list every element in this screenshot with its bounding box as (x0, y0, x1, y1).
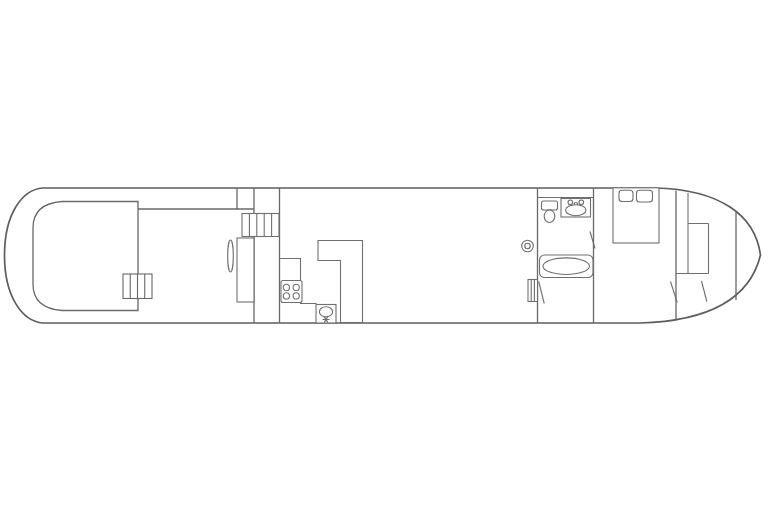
floor-plan-canvas (0, 0, 768, 512)
washbasin (561, 199, 591, 218)
stern-deck (33, 202, 152, 311)
bow-cabin (613, 188, 659, 243)
stove (281, 281, 302, 303)
galley-sink (316, 305, 336, 324)
stern-deck-structure (33, 202, 138, 311)
companionway (242, 214, 279, 237)
wardrobe (237, 238, 254, 302)
bathtub (540, 255, 594, 278)
basin-cabinet (561, 199, 591, 218)
stove-top (281, 281, 302, 303)
companionway-steps (242, 214, 279, 237)
steps-block (528, 280, 538, 302)
toilet-bowl (544, 210, 555, 223)
deck-access-steps (528, 280, 538, 302)
stern-deck-steps (123, 274, 152, 299)
boat-floor-plan (0, 0, 768, 512)
toilet-tank (542, 201, 558, 210)
